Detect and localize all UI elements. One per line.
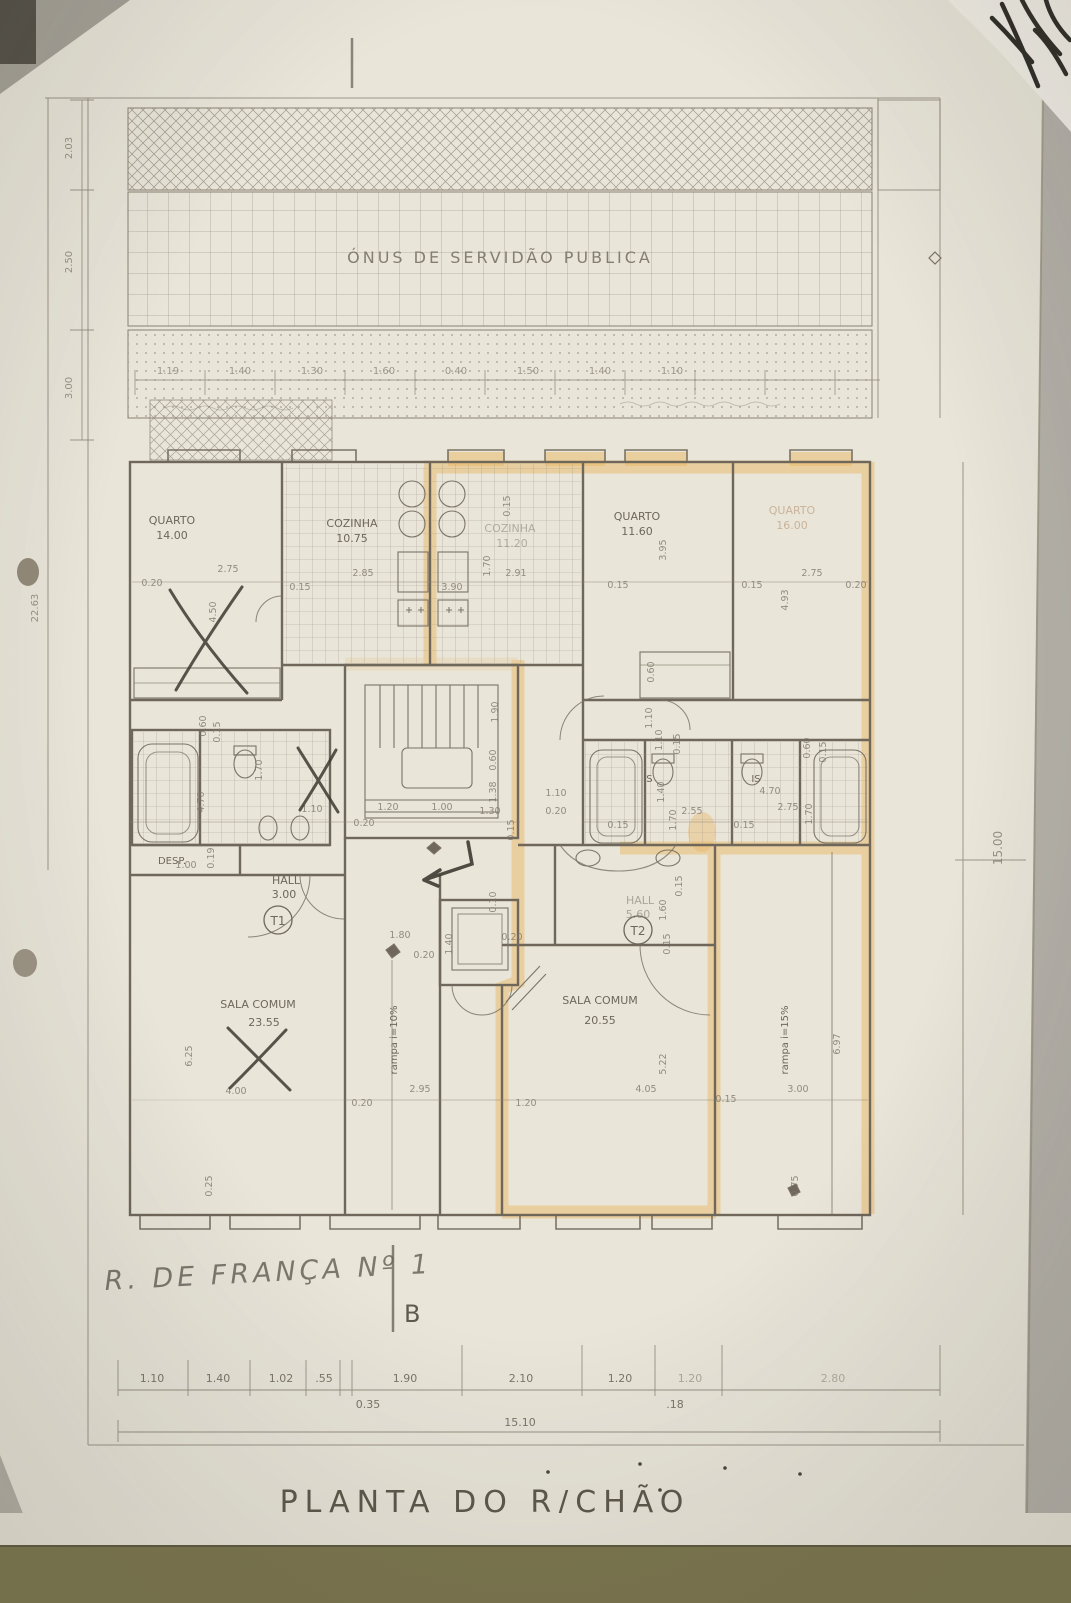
dim-value: 0.60 — [198, 715, 209, 736]
dim-value: 1.50 — [517, 366, 539, 377]
room-label-quarto2: QUARTO — [614, 510, 661, 523]
dim-value: 6.97 — [832, 1033, 843, 1054]
room-label-quarto3: QUARTO — [769, 504, 816, 517]
dim-value: 1.10 — [301, 804, 322, 815]
dim-value: 0.20 — [413, 950, 434, 961]
room-area-hall1: 3.00 — [272, 888, 297, 901]
dim-value: 1.20 — [377, 802, 398, 813]
dim-value: 1.02 — [269, 1372, 294, 1385]
dim-value: 1.00 — [431, 802, 452, 813]
dim-value: 0.15 — [715, 1094, 736, 1105]
dim-value: 2.80 — [821, 1372, 846, 1385]
dim-value: 0.15 — [672, 733, 683, 754]
room-label-is1: IS — [643, 774, 652, 785]
dim-value: 2.50 — [64, 251, 75, 273]
dim-value: 0.15 — [674, 875, 685, 896]
room-area-quarto1: 14.00 — [156, 529, 188, 542]
kitchen2-tiles — [432, 464, 581, 663]
dim-value: 1.10 — [661, 366, 683, 377]
hatched-band — [128, 108, 872, 190]
dim-value: 1.10 — [654, 729, 665, 750]
dim-value: 0.60 — [802, 737, 813, 758]
dim-value: 1.40 — [444, 933, 455, 954]
dim-value: 1.70 — [482, 555, 493, 576]
hole-punch-bottom — [13, 949, 37, 977]
dim-value: 1.90 — [393, 1372, 418, 1385]
dim-value: 4.70 — [759, 786, 780, 797]
dim-value: 1.70 — [254, 759, 265, 780]
dim-value: 0.20 — [141, 578, 162, 589]
room-area-cozinha1: 10.75 — [336, 532, 368, 545]
dim-value: 1.40 — [589, 366, 611, 377]
dim-value: 2.03 — [64, 137, 75, 159]
dim-value: 3.00 — [787, 1084, 808, 1095]
dim-value: 0.15 — [662, 933, 673, 954]
dim-value: 2.75 — [777, 802, 798, 813]
dim-value: .18 — [666, 1398, 684, 1411]
dim-value: 1.70 — [804, 803, 815, 824]
room-label-hall1: HALL — [272, 874, 301, 887]
dim-value: 4.50 — [208, 601, 219, 622]
room-label-sala2: SALA COMUM — [562, 994, 638, 1007]
dim-value: 0.15 — [289, 582, 310, 593]
room-label-is2: IS — [751, 774, 760, 785]
dim-value: 0.15 — [818, 741, 829, 762]
dim-value: 1.10 — [140, 1372, 165, 1385]
dim-value: 3.95 — [658, 539, 669, 560]
kitchen1-tiles — [284, 464, 428, 663]
dim-value: 0.60 — [646, 661, 657, 682]
dim-value: 1.10 — [545, 788, 566, 799]
scanned-floor-plan-photo: ÓNUS DE SERVIDÃO PUBLICA 1.19 1.40 1.30 … — [0, 0, 1071, 1603]
dim-value: 0.15 — [212, 721, 223, 742]
dim-value: 0.19 — [206, 847, 217, 868]
paper-fold-cover — [0, 1513, 1071, 1546]
dim-value: 2.10 — [509, 1372, 534, 1385]
unit-t1-label: T1 — [270, 914, 286, 928]
ramp-left-label: rampa i=10% — [389, 1005, 400, 1074]
dim-value: 4.93 — [780, 589, 791, 610]
dim-value: 1.90 — [490, 701, 501, 722]
room-label-sala1: SALA COMUM — [220, 998, 296, 1011]
dim-value: 0.40 — [445, 366, 467, 377]
dim-value: 2.55 — [681, 806, 702, 817]
dim-value: 1.30 — [479, 806, 500, 817]
hole-punch-top — [17, 558, 39, 586]
dim-value: 2.95 — [409, 1084, 430, 1095]
room-area-quarto3: 16.00 — [776, 519, 808, 532]
dim-value: 0.20 — [501, 932, 522, 943]
room-area-sala2: 20.55 — [584, 1014, 616, 1027]
dim-value: 0.15 — [506, 819, 517, 840]
ramp-right-label: rampa i=15% — [780, 1005, 791, 1074]
dim-value-left-total: 22.63 — [30, 594, 41, 623]
photo-background-bottom — [0, 1547, 1071, 1603]
dim-value: 1.10 — [644, 707, 655, 728]
dim-value: 1.30 — [301, 366, 323, 377]
room-area-cozinha2: 11.20 — [496, 537, 528, 550]
dim-value: 1.60 — [658, 899, 669, 920]
dim-value: 4.70 — [196, 791, 207, 812]
dim-value-right-total: 15.00 — [991, 831, 1005, 865]
hatched-patch — [150, 400, 332, 460]
dim-value: .55 — [315, 1372, 333, 1385]
dim-value: 1.40 — [656, 781, 667, 802]
unit-t2-label: T2 — [630, 924, 646, 938]
dim-value: 6.25 — [184, 1045, 195, 1066]
dim-value: 0.60 — [488, 749, 499, 770]
dim-value: 1.20 — [608, 1372, 633, 1385]
dim-value: 1.00 — [175, 860, 196, 871]
dim-value: 0.15 — [502, 495, 513, 516]
dim-value: 3.90 — [441, 582, 462, 593]
dim-value: 0.75 — [790, 1175, 801, 1196]
dim-value: 2.91 — [505, 568, 526, 579]
dim-value: 1.38 — [488, 781, 499, 802]
section-marker-label: B — [404, 1300, 420, 1328]
room-label-hall2: HALL — [626, 894, 655, 907]
dim-value: 1.80 — [389, 930, 410, 941]
dim-value: 0.20 — [545, 806, 566, 817]
dim-value: 1.40 — [229, 366, 251, 377]
dim-value: 0.10 — [488, 891, 499, 912]
dim-value: 0.35 — [356, 1398, 381, 1411]
room-label-cozinha2: COZINHA — [484, 522, 536, 535]
dim-value: 1.40 — [206, 1372, 231, 1385]
easement-banner-text: ÓNUS DE SERVIDÃO PUBLICA — [347, 248, 653, 267]
room-label-quarto1: QUARTO — [149, 514, 196, 527]
room-label-cozinha1: COZINHA — [326, 517, 378, 530]
dim-value: 1.20 — [678, 1372, 703, 1385]
dim-value: 0.20 — [353, 818, 374, 829]
dim-value: 0.25 — [204, 1175, 215, 1196]
dim-value: 2.75 — [801, 568, 822, 579]
room-area-quarto2: 11.60 — [621, 525, 653, 538]
dark-object-topleft — [0, 0, 36, 64]
room-area-sala1: 23.55 — [248, 1016, 280, 1029]
dim-value: 1.19 — [157, 366, 179, 377]
dim-value: 2.85 — [352, 568, 373, 579]
dim-value: 1.60 — [373, 366, 395, 377]
dim-value: 3.00 — [64, 377, 75, 399]
dim-value-bottom-total: 15.10 — [504, 1416, 536, 1429]
floor-plan-canvas: ÓNUS DE SERVIDÃO PUBLICA 1.19 1.40 1.30 … — [0, 0, 1071, 1603]
dim-value: 5.22 — [658, 1053, 669, 1074]
dim-value: 4.05 — [635, 1084, 656, 1095]
dim-value: 1.70 — [668, 809, 679, 830]
dim-value: 2.75 — [217, 564, 238, 575]
